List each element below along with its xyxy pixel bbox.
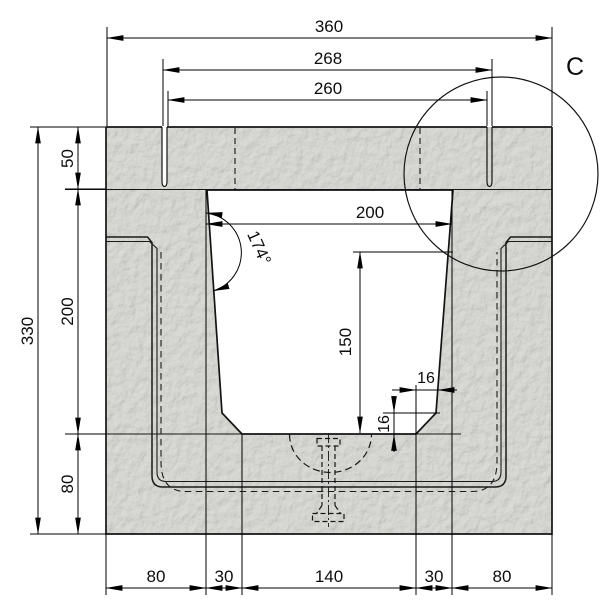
dim-overall-height: 330 xyxy=(18,317,37,345)
cover-joint-slot-left xyxy=(162,127,167,187)
dim-depth-to-chamfer: 150 xyxy=(336,328,355,356)
dim-wall-angle: 174° xyxy=(243,228,275,268)
technical-drawing-page: C xyxy=(0,0,612,610)
channel-cross-section-drawing: C xyxy=(0,0,612,610)
dim-overall-width: 360 xyxy=(315,17,343,36)
dim-cover-thickness: 50 xyxy=(58,149,77,168)
detail-label: C xyxy=(566,53,584,81)
dim-bottom-left-taper: 30 xyxy=(215,567,234,586)
dim-chamfer-width: 16 xyxy=(417,370,435,387)
dim-bottom-left-shoulder: 80 xyxy=(147,567,166,586)
dim-bottom-right-taper: 30 xyxy=(425,567,444,586)
dim-channel-depth: 200 xyxy=(58,297,77,325)
dim-bottom-floor: 140 xyxy=(315,567,343,586)
dim-bottom-right-shoulder: 80 xyxy=(493,567,512,586)
dim-cover-width: 260 xyxy=(314,79,342,98)
dim-base-thickness: 80 xyxy=(58,475,77,494)
dim-clear-width: 200 xyxy=(356,203,384,222)
dim-chamfer-height: 16 xyxy=(376,415,393,433)
dim-cover-seat-width: 268 xyxy=(314,49,342,68)
